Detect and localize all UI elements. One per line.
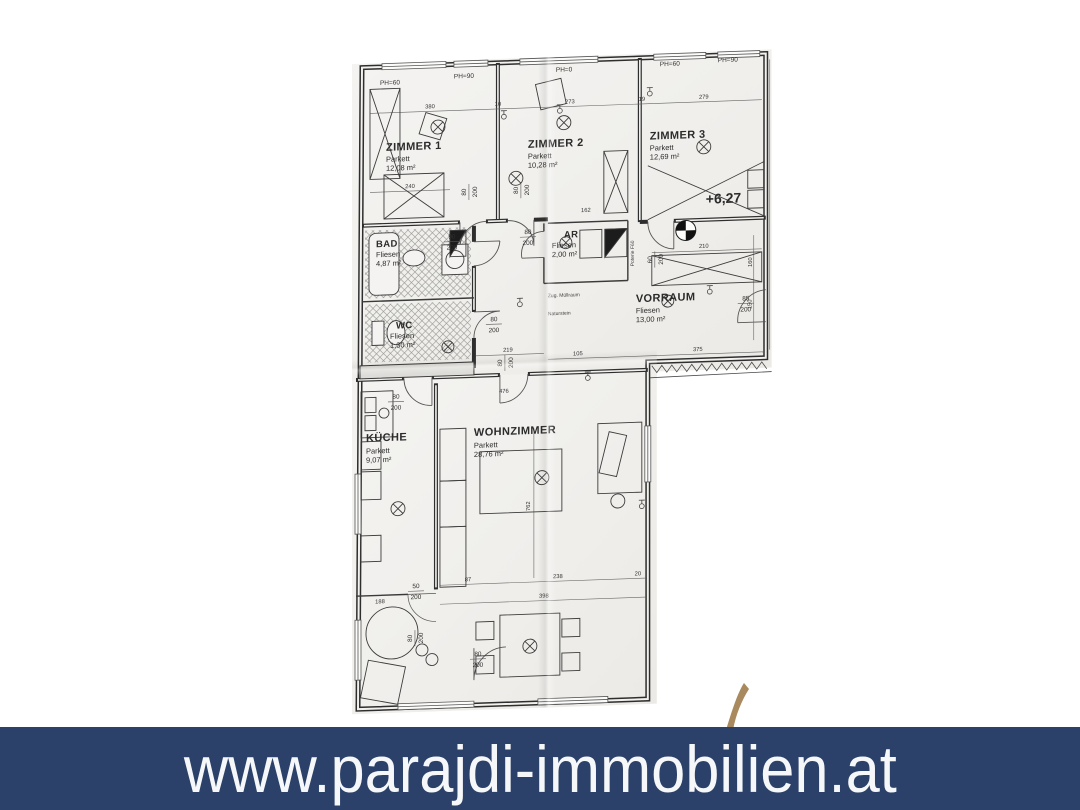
room-name: KÜCHE bbox=[366, 430, 407, 444]
room-name: BAD bbox=[376, 239, 398, 251]
room-area: 28,76 m² bbox=[474, 449, 504, 459]
dim: 279 bbox=[699, 95, 709, 101]
dim: 160 bbox=[748, 257, 754, 267]
door-height: 200 bbox=[411, 594, 422, 601]
door-height: 200 bbox=[473, 662, 484, 669]
door-width: 80 bbox=[407, 634, 414, 642]
door-width: 80 bbox=[524, 229, 532, 236]
room-area: 13,00 m² bbox=[636, 314, 666, 324]
gold-letter-icon bbox=[722, 682, 756, 730]
door-height: 200 bbox=[508, 357, 515, 368]
ph-label: PH=60 bbox=[660, 61, 680, 69]
level-marker-text: +6,27 bbox=[706, 189, 742, 206]
dim: 273 bbox=[565, 99, 575, 105]
room-name: ZIMMER 3 bbox=[650, 129, 706, 143]
door-width: 60 bbox=[647, 256, 654, 264]
screenshot: PH=60 PH=90 PH=0 PH=60 PH=90 ZIMMER 1 Pa… bbox=[0, 0, 1080, 810]
room-area: 2,00 m² bbox=[552, 249, 578, 259]
room-area: 12,69 m² bbox=[650, 152, 680, 162]
dim: 210 bbox=[699, 244, 709, 250]
door-height: 200 bbox=[489, 327, 500, 334]
dim: 762 bbox=[526, 501, 532, 511]
dim: 162 bbox=[581, 208, 591, 214]
door-width: 80 bbox=[474, 651, 482, 658]
dim: 240 bbox=[405, 184, 415, 190]
door-height: 200 bbox=[472, 186, 479, 197]
door-width: 80 bbox=[461, 188, 468, 196]
dim: 105 bbox=[573, 351, 583, 357]
door-width: 90 bbox=[448, 233, 456, 240]
ph-label: PH=90 bbox=[718, 57, 738, 65]
parajdi-logo-fragment bbox=[722, 682, 756, 730]
room-name: WC bbox=[396, 320, 413, 332]
dim: 20 bbox=[635, 571, 641, 577]
room-area: 10,28 m² bbox=[528, 160, 558, 170]
room-name: VORRAUM bbox=[636, 291, 696, 305]
level-marker-icon bbox=[676, 220, 696, 241]
room-name: AR bbox=[564, 229, 579, 241]
room-area: 12,08 m² bbox=[386, 163, 416, 173]
dim: 10 bbox=[495, 102, 501, 108]
dim: 19 bbox=[639, 97, 645, 103]
dim: 476 bbox=[499, 389, 509, 395]
ph-label: PH=60 bbox=[380, 79, 400, 87]
door-width: 50 bbox=[412, 583, 420, 590]
door-height: 200 bbox=[447, 244, 458, 251]
dim: 150 bbox=[748, 299, 754, 309]
website-url-text: www.parajdi-immobilien.at bbox=[184, 731, 897, 807]
door-width: 80 bbox=[513, 186, 520, 194]
room-area: 4,87 m² bbox=[376, 258, 402, 268]
door-height: 200 bbox=[524, 184, 531, 195]
dim: 375 bbox=[693, 347, 703, 353]
dim: 238 bbox=[553, 574, 563, 580]
room-name: ZIMMER 1 bbox=[386, 140, 442, 154]
door-width: 80 bbox=[497, 359, 504, 367]
door-height: 200 bbox=[658, 253, 665, 264]
room-area: 9,07 m² bbox=[366, 455, 392, 465]
note: Naturstein bbox=[548, 311, 571, 318]
floorplan-drawing: PH=60 PH=90 PH=0 PH=60 PH=90 ZIMMER 1 Pa… bbox=[352, 49, 772, 714]
note: Zug. Müllraum bbox=[548, 292, 580, 299]
room-name: ZIMMER 2 bbox=[528, 137, 584, 151]
door-width: 80 bbox=[392, 394, 400, 401]
dim: 87 bbox=[465, 577, 471, 583]
door-height: 200 bbox=[523, 240, 534, 247]
door-width: 80 bbox=[490, 316, 498, 323]
dim: 219 bbox=[503, 348, 513, 354]
dim: 188 bbox=[375, 599, 385, 605]
website-banner: www.parajdi-immobilien.at bbox=[0, 727, 1080, 810]
ph-label: PH=0 bbox=[556, 66, 573, 74]
dim: 380 bbox=[425, 104, 435, 110]
note: Poterie F60 bbox=[630, 240, 636, 266]
room-area: 1,30 m² bbox=[390, 340, 416, 350]
ph-label: PH=90 bbox=[454, 73, 474, 81]
door-height: 200 bbox=[391, 404, 402, 411]
dim: 398 bbox=[539, 593, 549, 599]
floorplan-sheet: PH=60 PH=90 PH=0 PH=60 PH=90 ZIMMER 1 Pa… bbox=[352, 49, 772, 714]
door-height: 200 bbox=[418, 632, 425, 643]
